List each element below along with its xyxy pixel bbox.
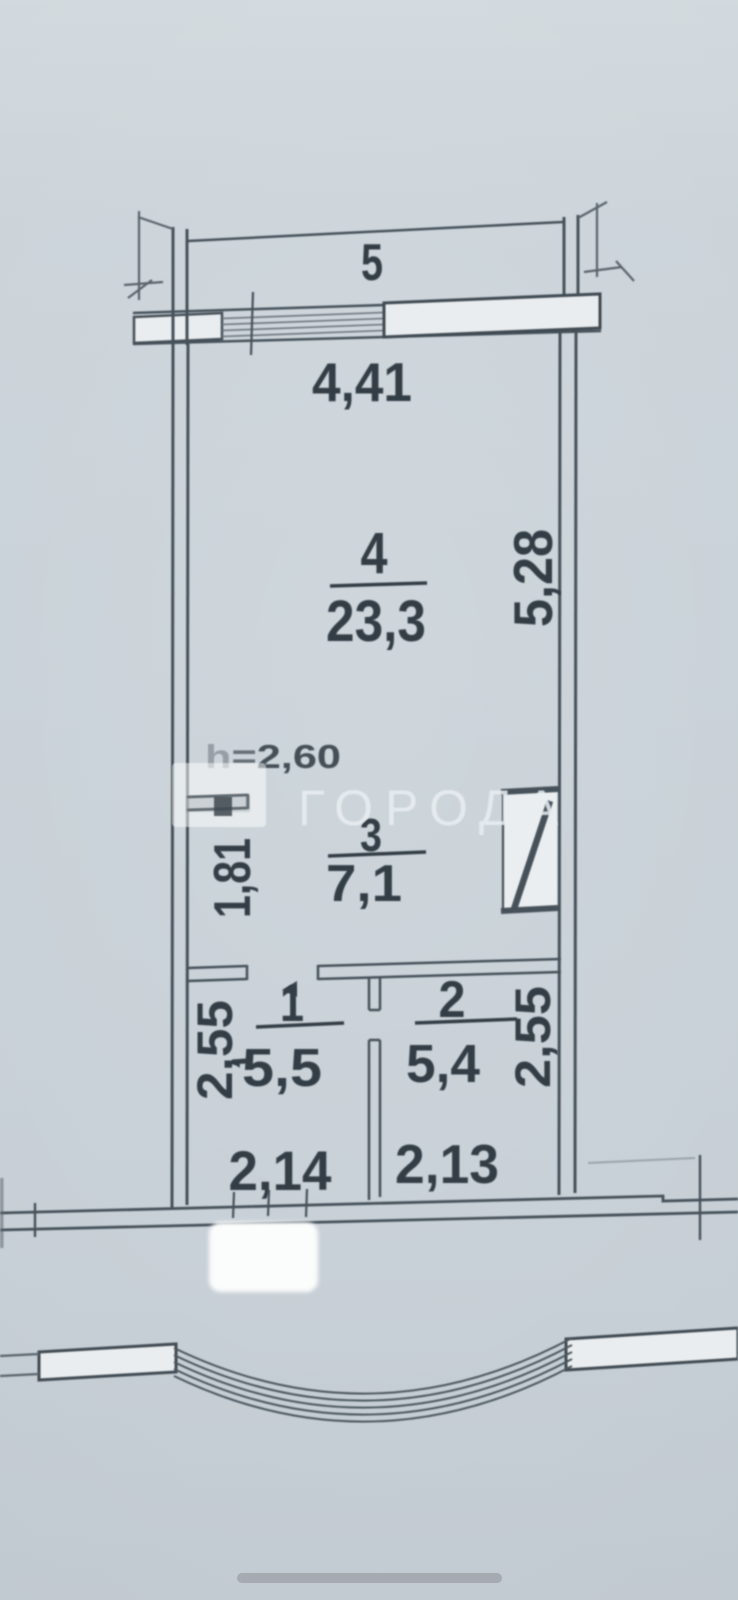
svg-text:ГОРОДА: ГОРОДА xyxy=(298,780,559,836)
